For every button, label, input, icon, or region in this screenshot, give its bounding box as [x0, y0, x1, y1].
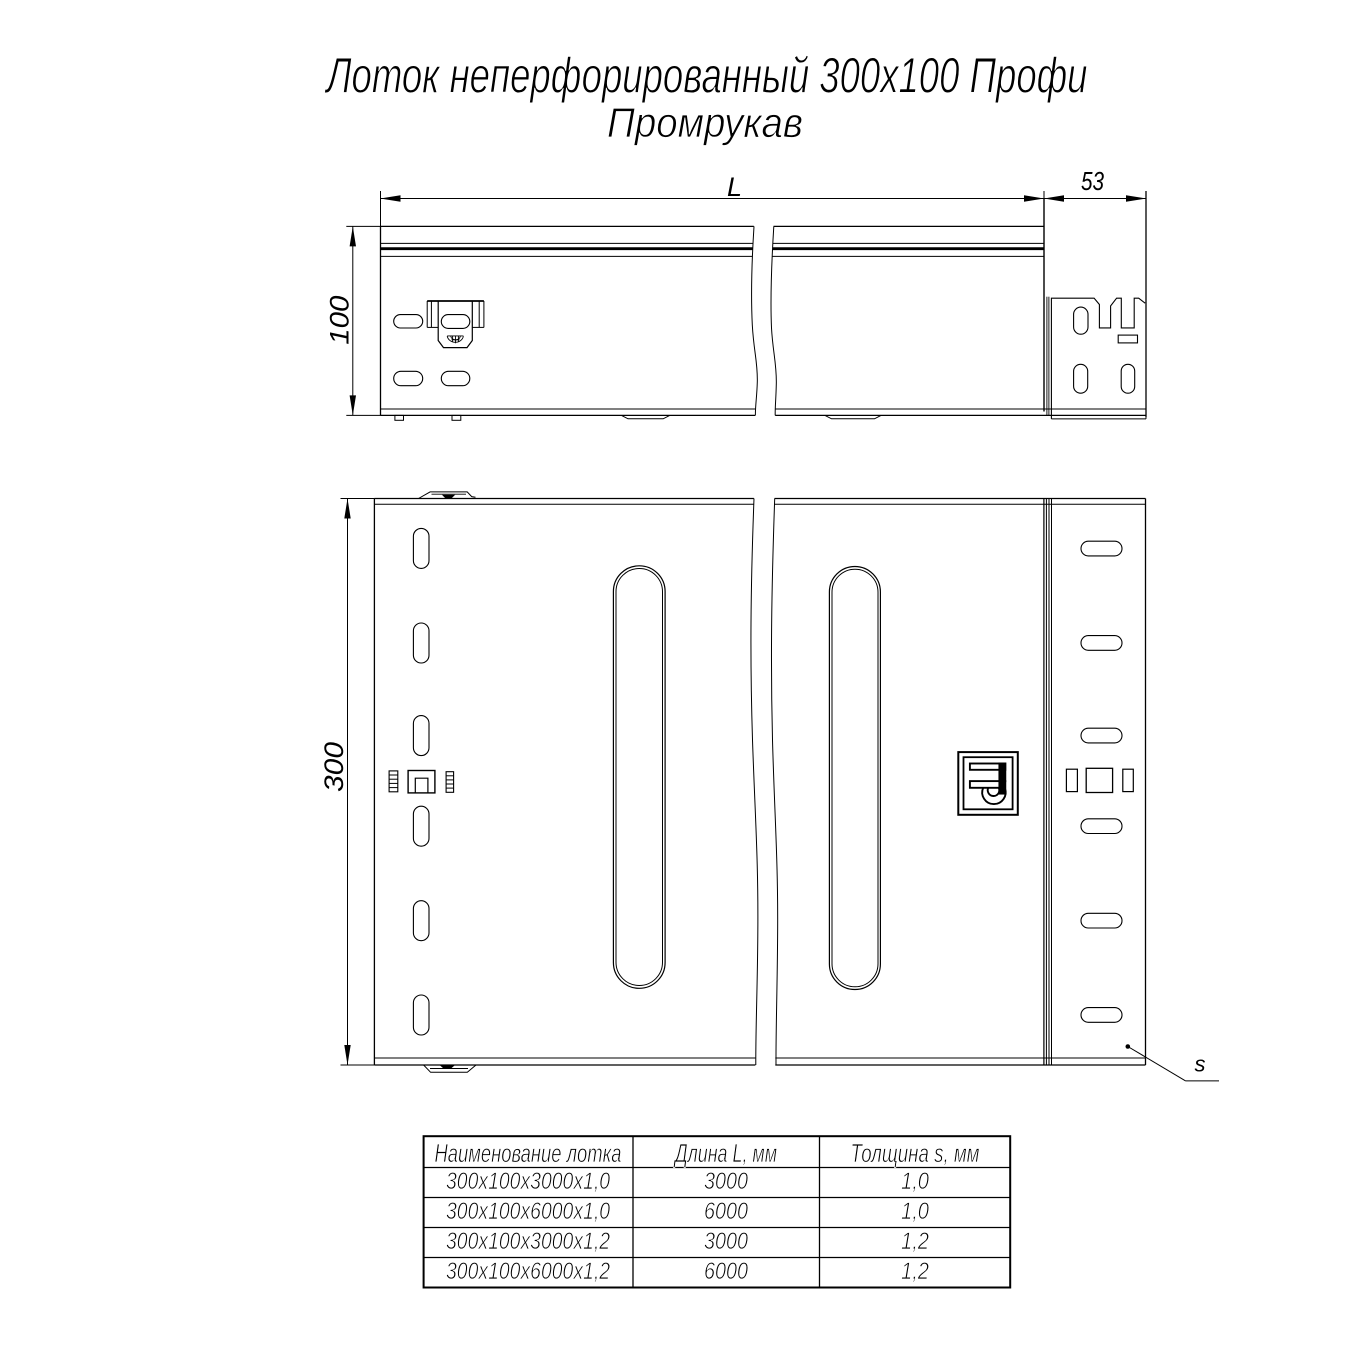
- svg-text:100: 100: [325, 296, 355, 345]
- svg-text:1,2: 1,2: [901, 1258, 929, 1285]
- svg-text:300: 300: [319, 742, 349, 792]
- svg-text:3000: 3000: [704, 1228, 749, 1255]
- svg-text:300х100х6000х1,2: 300х100х6000х1,2: [446, 1258, 610, 1285]
- svg-text:Наименование лотка: Наименование лотка: [435, 1138, 622, 1168]
- svg-text:6000: 6000: [704, 1258, 749, 1285]
- svg-text:300х100х6000х1,0: 300х100х6000х1,0: [446, 1198, 611, 1225]
- svg-text:Промрукав: Промрукав: [607, 99, 803, 146]
- svg-text:L: L: [727, 172, 742, 202]
- svg-text:Лоток неперфорированный 300х10: Лоток неперфорированный 300х100 Профи: [324, 48, 1087, 104]
- svg-text:1,0: 1,0: [901, 1198, 930, 1225]
- svg-text:3000: 3000: [704, 1168, 749, 1195]
- svg-text:1,0: 1,0: [901, 1168, 930, 1195]
- svg-text:Толщина s, мм: Толщина s, мм: [851, 1138, 980, 1168]
- svg-text:300х100х3000х1,0: 300х100х3000х1,0: [446, 1168, 611, 1195]
- svg-text:6000: 6000: [704, 1198, 749, 1225]
- svg-text:300х100х3000х1,2: 300х100х3000х1,2: [446, 1228, 610, 1255]
- svg-text:53: 53: [1081, 166, 1104, 196]
- svg-text:s: s: [1195, 1052, 1206, 1077]
- svg-text:1,2: 1,2: [901, 1228, 929, 1255]
- svg-text:Длина L, мм: Длина L, мм: [673, 1138, 777, 1168]
